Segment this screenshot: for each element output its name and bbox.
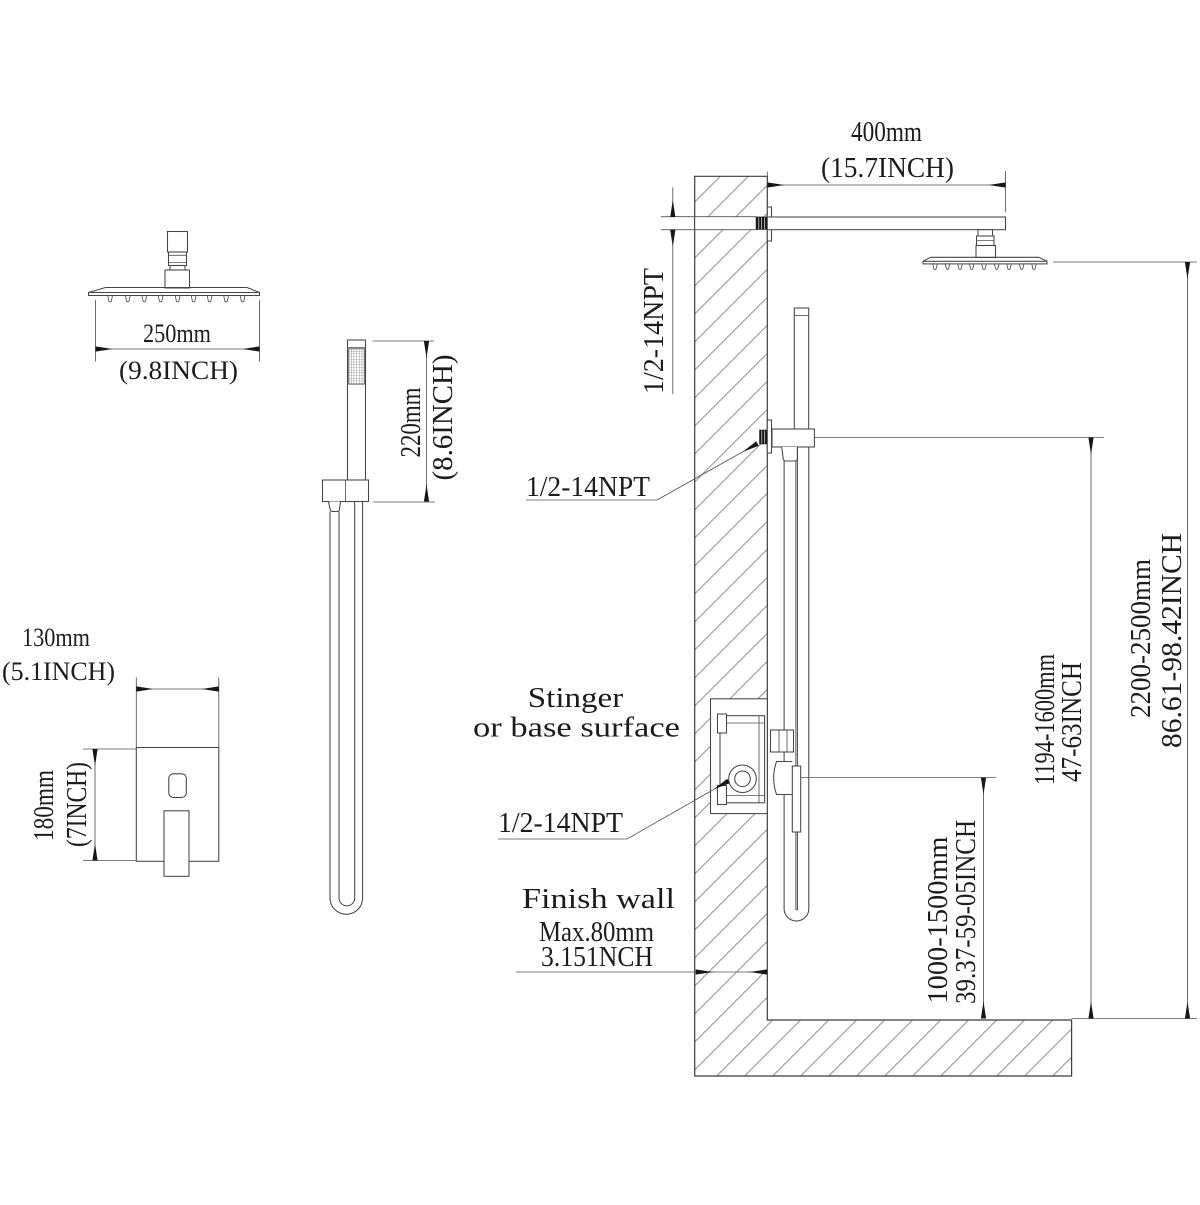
svg-text:130mm: 130mm (22, 622, 90, 652)
svg-text:3.151NCH: 3.151NCH (541, 942, 653, 973)
svg-text:or base surface: or base surface (473, 713, 680, 744)
svg-text:1/2-14NPT: 1/2-14NPT (639, 268, 670, 394)
svg-text:Finish wall: Finish wall (522, 884, 675, 915)
svg-text:250mm: 250mm (143, 318, 211, 348)
svg-text:1/2-14NPT: 1/2-14NPT (526, 472, 650, 503)
svg-text:Stinger: Stinger (528, 683, 624, 714)
svg-text:39.37-59-05INCH: 39.37-59-05INCH (951, 820, 982, 1004)
svg-text:(5.1INCH): (5.1INCH) (2, 656, 115, 686)
svg-text:1000-1500mm: 1000-1500mm (923, 836, 954, 1003)
svg-text:2200-2500mm: 2200-2500mm (1126, 559, 1157, 718)
svg-text:180mm: 180mm (29, 770, 60, 841)
svg-text:(15.7INCH): (15.7INCH) (821, 153, 954, 184)
svg-text:400mm: 400mm (851, 117, 922, 148)
svg-text:(9.8INCH): (9.8INCH) (119, 355, 238, 385)
svg-text:(8.6INCH): (8.6INCH) (428, 355, 459, 481)
svg-text:1/2-14NPT: 1/2-14NPT (498, 808, 623, 839)
svg-text:47-63INCH: 47-63INCH (1057, 662, 1088, 782)
svg-text:(7INCH): (7INCH) (62, 762, 93, 847)
svg-text:86.61-98.42INCH: 86.61-98.42INCH (1157, 533, 1188, 748)
svg-text:220mm: 220mm (396, 387, 427, 457)
